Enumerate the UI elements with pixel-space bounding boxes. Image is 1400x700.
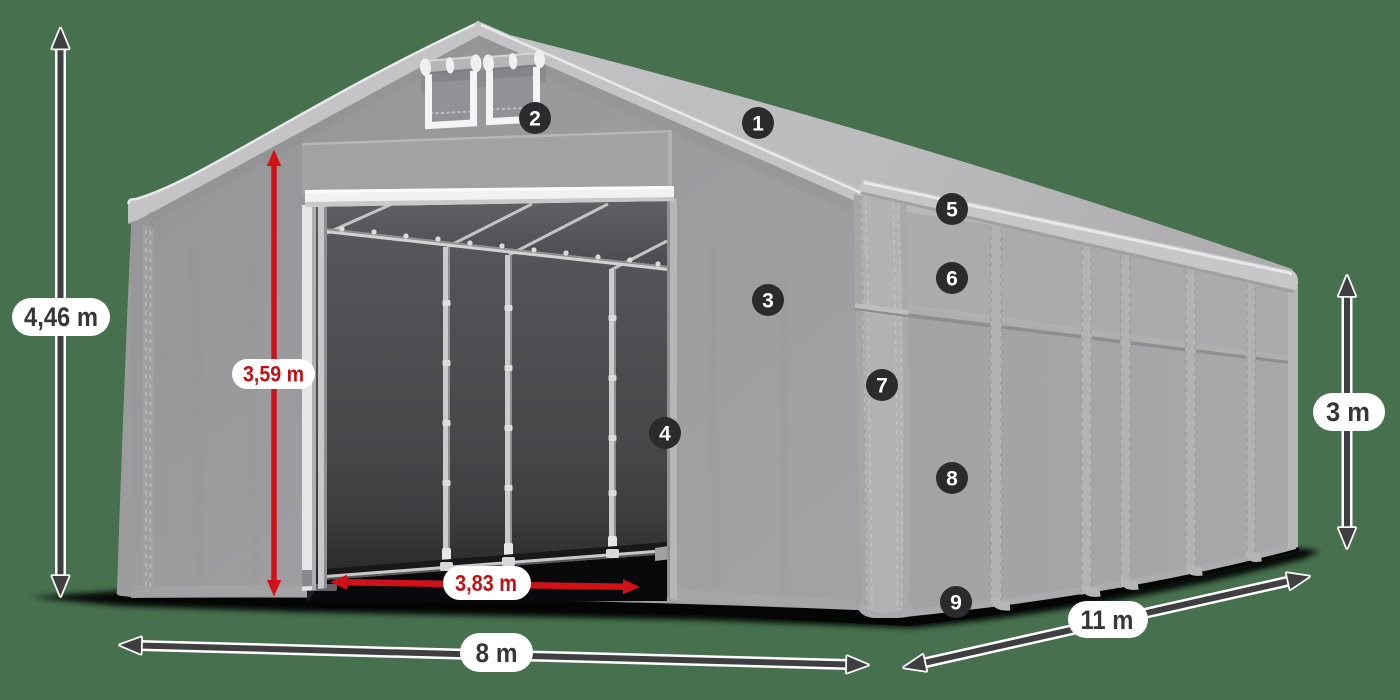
svg-text:11 m: 11 m xyxy=(1081,605,1134,635)
svg-text:3 m: 3 m xyxy=(1326,397,1370,427)
svg-text:2: 2 xyxy=(529,108,541,131)
svg-text:8: 8 xyxy=(946,468,958,491)
svg-text:8 m: 8 m xyxy=(476,638,518,668)
svg-text:4,46 m: 4,46 m xyxy=(24,302,98,332)
svg-text:5: 5 xyxy=(946,199,958,222)
svg-text:7: 7 xyxy=(876,375,888,398)
svg-text:3,59 m: 3,59 m xyxy=(243,362,304,387)
svg-text:3: 3 xyxy=(762,290,774,313)
svg-text:9: 9 xyxy=(950,592,962,615)
svg-text:4: 4 xyxy=(659,423,671,446)
svg-text:1: 1 xyxy=(752,113,764,136)
svg-text:6: 6 xyxy=(946,268,958,291)
svg-text:3,83 m: 3,83 m xyxy=(455,570,517,596)
